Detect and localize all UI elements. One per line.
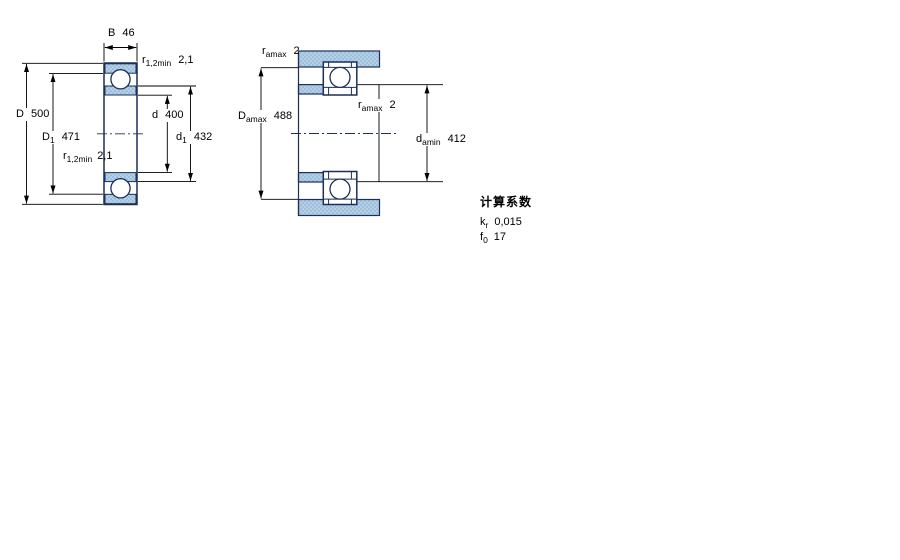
calculation-factors-title: 计算系数 bbox=[480, 196, 532, 209]
dim-label-shoulder-outer: D1471 bbox=[40, 131, 82, 144]
dim-label-shaft-abutment: damin412 bbox=[414, 133, 468, 146]
ball-top bbox=[111, 70, 130, 89]
dim-label-outer-diameter: D500 bbox=[14, 108, 51, 121]
dim-label-housing-abutment: Damax488 bbox=[236, 110, 294, 123]
bearing-technical-drawing-page: B46 r1,2min2,1 D500 d400 D1471 d1432 r1,… bbox=[0, 0, 900, 560]
dim-label-fillet-bottom: r1,2min2,1 bbox=[63, 150, 112, 163]
dim-label-housing-fillet: ramax2 bbox=[262, 45, 300, 58]
technical-drawing-canvas bbox=[0, 0, 900, 560]
factor-row-f0: f017 bbox=[480, 231, 506, 244]
dim-label-bore: d400 bbox=[150, 109, 185, 122]
shaft-shoulder-top bbox=[299, 85, 324, 94]
dim-label-fillet-top: r1,2min2,1 bbox=[142, 54, 193, 67]
ball-top bbox=[330, 67, 350, 87]
dim-label-width: B46 bbox=[108, 27, 135, 40]
shaft-shoulder-bottom bbox=[299, 173, 324, 182]
factor-row-kr: kr0,015 bbox=[480, 216, 522, 229]
dim-label-shoulder-inner: d1432 bbox=[174, 131, 214, 144]
ball-bottom bbox=[111, 179, 130, 198]
ball-bottom bbox=[330, 179, 350, 199]
dim-label-shaft-fillet: ramax2 bbox=[356, 99, 398, 112]
